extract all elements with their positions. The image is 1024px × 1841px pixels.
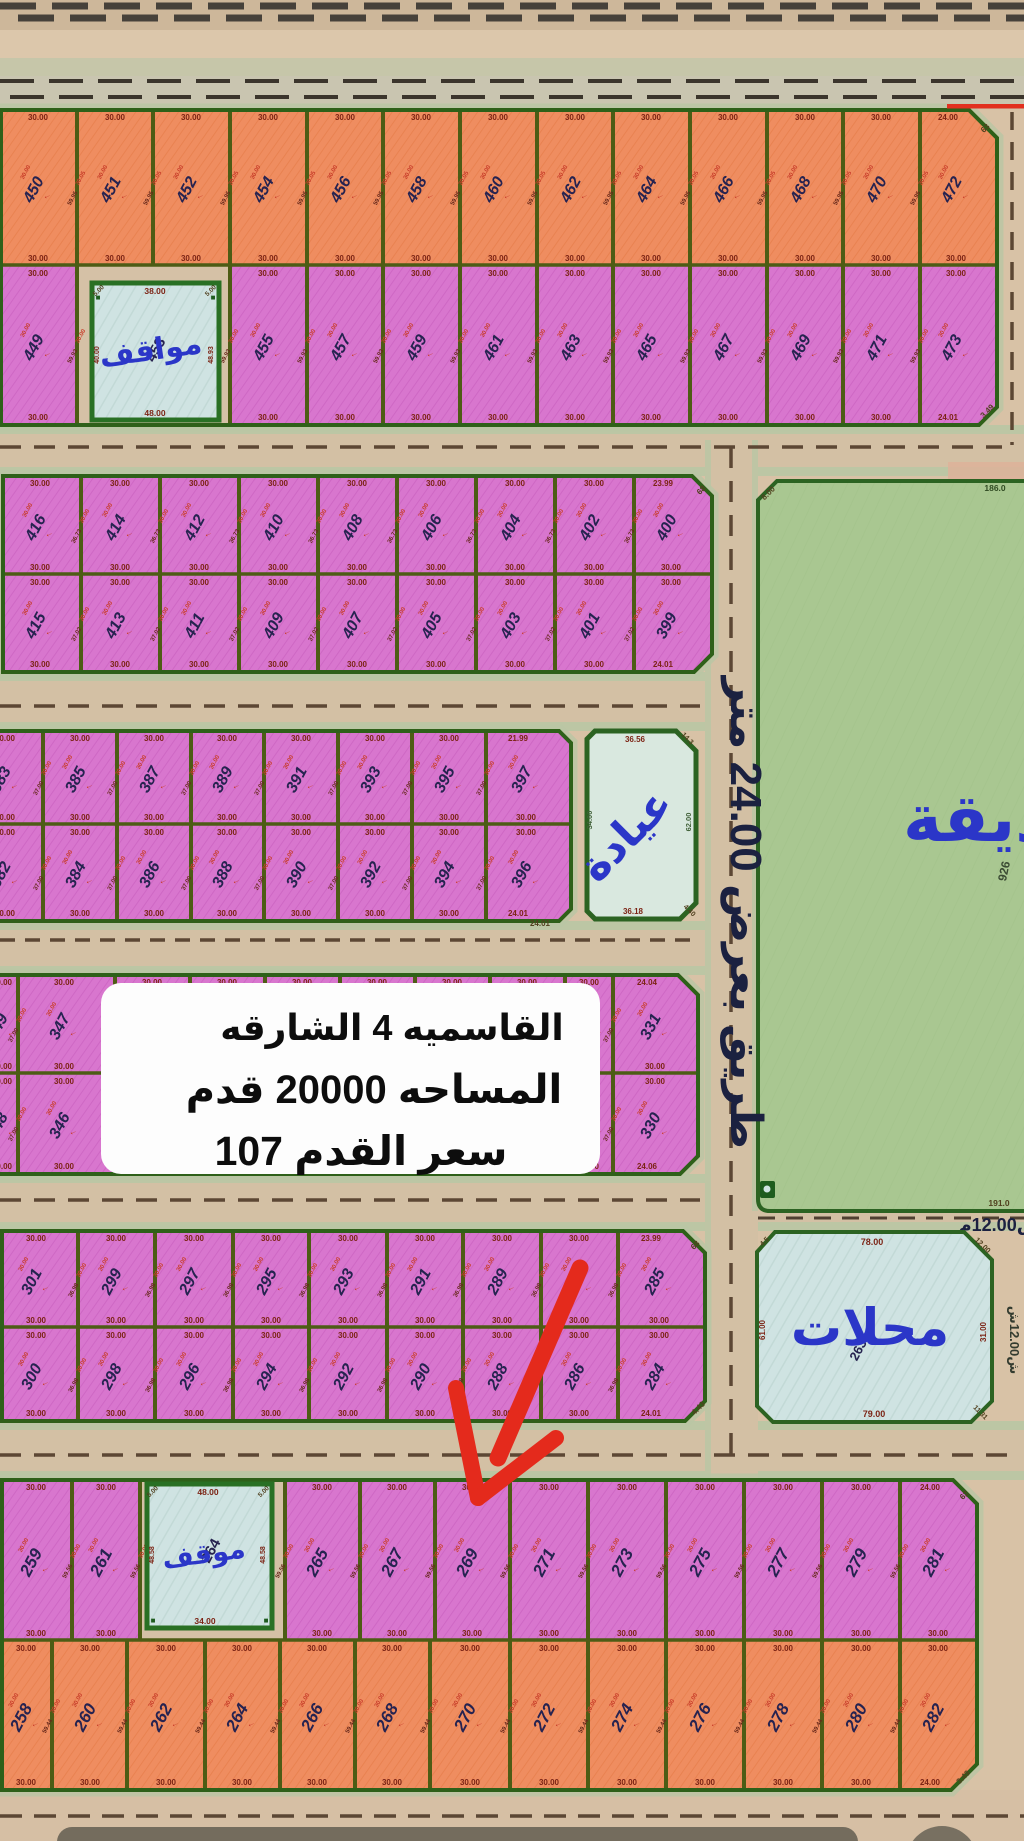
svg-text:30.00: 30.00 xyxy=(795,254,816,263)
svg-text:30.00: 30.00 xyxy=(347,563,368,572)
svg-text:30.00: 30.00 xyxy=(110,660,131,669)
svg-text:30.00: 30.00 xyxy=(96,1629,117,1638)
svg-text:30.00: 30.00 xyxy=(773,1644,794,1653)
svg-text:31.00: 31.00 xyxy=(979,1321,988,1342)
svg-text:30.00: 30.00 xyxy=(584,578,605,587)
svg-text:30.00: 30.00 xyxy=(184,1234,205,1243)
svg-text:30.00: 30.00 xyxy=(307,1778,328,1787)
svg-text:30.00: 30.00 xyxy=(105,254,126,263)
svg-text:30.00: 30.00 xyxy=(641,113,662,122)
svg-text:30.00: 30.00 xyxy=(773,1629,794,1638)
svg-text:30.00: 30.00 xyxy=(718,254,739,263)
svg-text:30.00: 30.00 xyxy=(649,1331,670,1340)
svg-text:30.00: 30.00 xyxy=(335,413,356,422)
svg-text:30.00: 30.00 xyxy=(539,1778,560,1787)
svg-text:30.00: 30.00 xyxy=(871,413,892,422)
svg-text:30.00: 30.00 xyxy=(505,578,526,587)
svg-text:24.00: 24.00 xyxy=(938,113,959,122)
svg-text:30.00: 30.00 xyxy=(16,1644,37,1653)
svg-text:■: ■ xyxy=(264,1616,269,1625)
svg-text:30.00: 30.00 xyxy=(28,269,49,278)
svg-text:36.56: 36.56 xyxy=(625,735,646,744)
svg-text:30.00: 30.00 xyxy=(0,828,16,837)
svg-text:30.00: 30.00 xyxy=(617,1483,638,1492)
svg-text:30.00: 30.00 xyxy=(16,1778,37,1787)
svg-text:30.00: 30.00 xyxy=(338,1234,359,1243)
svg-text:30.00: 30.00 xyxy=(232,1778,253,1787)
svg-text:30.00: 30.00 xyxy=(217,828,238,837)
svg-text:سعر القدم 107: سعر القدم 107 xyxy=(215,1128,508,1176)
svg-text:30.00: 30.00 xyxy=(695,1644,716,1653)
svg-text:30.00: 30.00 xyxy=(426,578,447,587)
svg-text:30.00: 30.00 xyxy=(338,1331,359,1340)
svg-text:30.00: 30.00 xyxy=(505,479,526,488)
svg-text:48.00: 48.00 xyxy=(197,1487,219,1497)
svg-text:38.00: 38.00 xyxy=(144,286,166,296)
svg-text:30.00: 30.00 xyxy=(189,563,210,572)
svg-text:ش12.00ش: ش12.00ش xyxy=(1007,1306,1022,1374)
svg-text:■: ■ xyxy=(151,1616,156,1625)
svg-text:48.00: 48.00 xyxy=(144,408,166,418)
svg-text:30.00: 30.00 xyxy=(795,269,816,278)
svg-text:30.00: 30.00 xyxy=(641,413,662,422)
svg-text:30.00: 30.00 xyxy=(584,660,605,669)
svg-text:30.00: 30.00 xyxy=(70,828,91,837)
svg-text:30.00: 30.00 xyxy=(365,828,386,837)
svg-text:30.00: 30.00 xyxy=(773,1483,794,1492)
svg-text:24.01: 24.01 xyxy=(653,660,674,669)
svg-text:30.00: 30.00 xyxy=(488,413,509,422)
svg-text:30.00: 30.00 xyxy=(312,1629,333,1638)
svg-text:30.00: 30.00 xyxy=(26,1629,47,1638)
svg-text:30.00: 30.00 xyxy=(569,1409,590,1418)
svg-text:30.00: 30.00 xyxy=(871,113,892,122)
svg-text:30.00: 30.00 xyxy=(70,813,91,822)
svg-text:30.00: 30.00 xyxy=(26,1331,47,1340)
svg-text:30.00: 30.00 xyxy=(488,113,509,122)
svg-text:30.00: 30.00 xyxy=(617,1629,638,1638)
svg-text:78.00: 78.00 xyxy=(861,1237,884,1247)
svg-text:محلات: محلات xyxy=(791,1299,949,1356)
svg-text:30.00: 30.00 xyxy=(258,113,279,122)
svg-text:30.00: 30.00 xyxy=(426,479,447,488)
svg-text:30.00: 30.00 xyxy=(268,578,289,587)
svg-text:30.00: 30.00 xyxy=(565,413,586,422)
svg-text:30.00: 30.00 xyxy=(488,254,509,263)
svg-text:30.00: 30.00 xyxy=(156,1778,177,1787)
svg-text:30.00: 30.00 xyxy=(0,813,16,822)
svg-text:30.00: 30.00 xyxy=(70,909,91,918)
svg-text:30.00: 30.00 xyxy=(110,578,131,587)
svg-text:30.00: 30.00 xyxy=(291,734,312,743)
svg-text:30.00: 30.00 xyxy=(347,660,368,669)
svg-text:30.00: 30.00 xyxy=(54,978,75,987)
svg-text:30.00: 30.00 xyxy=(261,1409,282,1418)
svg-text:79.00: 79.00 xyxy=(863,1409,886,1419)
svg-text:30.00: 30.00 xyxy=(946,269,967,278)
svg-text:القاسميه 4 الشارقه: القاسميه 4 الشارقه xyxy=(220,1007,564,1049)
svg-text:30.00: 30.00 xyxy=(565,269,586,278)
svg-text:30.00: 30.00 xyxy=(795,413,816,422)
svg-text:30.00: 30.00 xyxy=(415,1316,436,1325)
svg-text:30.00: 30.00 xyxy=(871,254,892,263)
svg-text:■: ■ xyxy=(211,293,216,302)
svg-text:191.0: 191.0 xyxy=(988,1198,1010,1208)
svg-text:30.00: 30.00 xyxy=(26,1316,47,1325)
svg-text:30.00: 30.00 xyxy=(105,113,126,122)
svg-text:30.00: 30.00 xyxy=(645,1062,666,1071)
svg-text:30.00: 30.00 xyxy=(516,813,537,822)
svg-text:30.00: 30.00 xyxy=(335,254,356,263)
svg-text:30.00: 30.00 xyxy=(426,563,447,572)
svg-text:30.00: 30.00 xyxy=(718,269,739,278)
svg-text:30.00: 30.00 xyxy=(411,254,432,263)
svg-text:30.00: 30.00 xyxy=(773,1778,794,1787)
svg-text:62.00: 62.00 xyxy=(684,813,693,832)
svg-text:21.99: 21.99 xyxy=(508,734,529,743)
svg-text:30.00: 30.00 xyxy=(189,479,210,488)
svg-text:30.00: 30.00 xyxy=(718,113,739,122)
svg-text:30.00: 30.00 xyxy=(338,1409,359,1418)
svg-text:30.00: 30.00 xyxy=(70,734,91,743)
svg-text:24.04: 24.04 xyxy=(637,978,658,987)
svg-text:30.00: 30.00 xyxy=(516,828,537,837)
svg-text:30.00: 30.00 xyxy=(0,1162,13,1171)
svg-text:34.00: 34.00 xyxy=(194,1616,216,1626)
svg-text:23.99: 23.99 xyxy=(653,479,674,488)
svg-text:30.00: 30.00 xyxy=(184,1316,205,1325)
svg-text:30.00: 30.00 xyxy=(156,1644,177,1653)
svg-text:24.01: 24.01 xyxy=(641,1409,662,1418)
svg-text:30.00: 30.00 xyxy=(460,1778,481,1787)
svg-text:30.00: 30.00 xyxy=(54,1062,75,1071)
svg-text:30.00: 30.00 xyxy=(0,734,16,743)
svg-text:30.00: 30.00 xyxy=(462,1629,483,1638)
svg-text:30.00: 30.00 xyxy=(54,1077,75,1086)
svg-text:30.00: 30.00 xyxy=(617,1778,638,1787)
svg-text:30.00: 30.00 xyxy=(338,1316,359,1325)
svg-text:30.00: 30.00 xyxy=(110,563,131,572)
svg-text:23.99: 23.99 xyxy=(641,1234,662,1243)
svg-text:30.00: 30.00 xyxy=(569,1316,590,1325)
svg-text:30.00: 30.00 xyxy=(232,1644,253,1653)
svg-text:30.00: 30.00 xyxy=(28,254,49,263)
svg-text:30.00: 30.00 xyxy=(144,828,165,837)
svg-text:30.00: 30.00 xyxy=(184,1331,205,1340)
svg-text:30.00: 30.00 xyxy=(30,660,51,669)
svg-text:30.00: 30.00 xyxy=(26,1234,47,1243)
svg-text:■: ■ xyxy=(96,293,101,302)
svg-text:30.00: 30.00 xyxy=(261,1331,282,1340)
svg-text:30.00: 30.00 xyxy=(28,413,49,422)
svg-text:30.00: 30.00 xyxy=(584,479,605,488)
svg-text:30.00: 30.00 xyxy=(96,1483,117,1492)
svg-text:30.00: 30.00 xyxy=(181,254,202,263)
svg-text:30.00: 30.00 xyxy=(505,660,526,669)
svg-text:30.00: 30.00 xyxy=(291,813,312,822)
svg-text:30.00: 30.00 xyxy=(387,1629,408,1638)
svg-text:24.01: 24.01 xyxy=(938,413,959,422)
svg-text:30.00: 30.00 xyxy=(426,660,447,669)
svg-text:30.00: 30.00 xyxy=(30,563,51,572)
svg-text:30.00: 30.00 xyxy=(569,1331,590,1340)
svg-text:30.00: 30.00 xyxy=(695,1778,716,1787)
svg-text:30.00: 30.00 xyxy=(268,479,289,488)
svg-text:30.00: 30.00 xyxy=(539,1629,560,1638)
svg-text:30.00: 30.00 xyxy=(928,1629,949,1638)
svg-text:30.00: 30.00 xyxy=(492,1316,513,1325)
svg-text:30.00: 30.00 xyxy=(382,1644,403,1653)
svg-text:ش12.00م: ش12.00م xyxy=(958,1215,1024,1235)
svg-text:61.00: 61.00 xyxy=(758,1319,767,1340)
svg-text:المساحه 20000 قدم: المساحه 20000 قدم xyxy=(186,1068,562,1113)
svg-text:30.00: 30.00 xyxy=(851,1629,872,1638)
svg-text:30.00: 30.00 xyxy=(641,269,662,278)
svg-text:24.00: 24.00 xyxy=(920,1778,941,1787)
svg-text:30.00: 30.00 xyxy=(144,909,165,918)
svg-text:30.00: 30.00 xyxy=(795,113,816,122)
svg-text:30.00: 30.00 xyxy=(851,1644,872,1653)
svg-text:30.00: 30.00 xyxy=(291,828,312,837)
svg-text:30.00: 30.00 xyxy=(335,113,356,122)
svg-text:30.00: 30.00 xyxy=(307,1644,328,1653)
svg-text:48.58: 48.58 xyxy=(149,1546,156,1564)
svg-text:24.00: 24.00 xyxy=(920,1483,941,1492)
svg-text:30.00: 30.00 xyxy=(106,1409,127,1418)
svg-text:186.0: 186.0 xyxy=(984,483,1006,493)
svg-text:48.93: 48.93 xyxy=(208,346,215,364)
svg-text:طريق بعرض 24.00 متر: طريق بعرض 24.00 متر xyxy=(720,675,770,1149)
svg-text:30.00: 30.00 xyxy=(649,1316,670,1325)
svg-text:30.00: 30.00 xyxy=(439,909,460,918)
svg-text:30.00: 30.00 xyxy=(365,734,386,743)
svg-text:30.00: 30.00 xyxy=(411,413,432,422)
svg-text:30.00: 30.00 xyxy=(460,1644,481,1653)
svg-text:30.00: 30.00 xyxy=(492,1234,513,1243)
svg-text:30.00: 30.00 xyxy=(189,660,210,669)
svg-text:30.00: 30.00 xyxy=(312,1483,333,1492)
svg-text:30.00: 30.00 xyxy=(439,734,460,743)
svg-text:30.00: 30.00 xyxy=(189,578,210,587)
svg-text:30.00: 30.00 xyxy=(181,113,202,122)
svg-text:30.00: 30.00 xyxy=(565,254,586,263)
svg-text:30.00: 30.00 xyxy=(217,909,238,918)
svg-text:30.00: 30.00 xyxy=(928,1644,949,1653)
svg-text:30.00: 30.00 xyxy=(26,1483,47,1492)
svg-text:30.00: 30.00 xyxy=(0,978,13,987)
svg-text:30.00: 30.00 xyxy=(439,828,460,837)
svg-text:30.00: 30.00 xyxy=(569,1234,590,1243)
svg-text:30.00: 30.00 xyxy=(584,563,605,572)
svg-text:30.00: 30.00 xyxy=(261,1234,282,1243)
svg-text:30.00: 30.00 xyxy=(695,1483,716,1492)
svg-text:30.00: 30.00 xyxy=(718,413,739,422)
svg-text:30.00: 30.00 xyxy=(30,578,51,587)
svg-text:30.00: 30.00 xyxy=(258,413,279,422)
svg-text:30.00: 30.00 xyxy=(439,813,460,822)
svg-text:30.00: 30.00 xyxy=(144,734,165,743)
svg-text:36.18: 36.18 xyxy=(623,907,644,916)
svg-text:30.00: 30.00 xyxy=(641,254,662,263)
svg-text:48.58: 48.58 xyxy=(260,1546,267,1564)
svg-text:24.06: 24.06 xyxy=(637,1162,658,1171)
svg-text:24.01: 24.01 xyxy=(508,909,529,918)
svg-text:30.00: 30.00 xyxy=(0,909,16,918)
svg-text:30.00: 30.00 xyxy=(80,1644,101,1653)
svg-text:30.00: 30.00 xyxy=(80,1778,101,1787)
svg-text:30.00: 30.00 xyxy=(415,1331,436,1340)
svg-text:30.00: 30.00 xyxy=(258,269,279,278)
svg-text:30.00: 30.00 xyxy=(106,1331,127,1340)
svg-text:30.00: 30.00 xyxy=(365,813,386,822)
svg-text:30.00: 30.00 xyxy=(106,1234,127,1243)
svg-text:30.00: 30.00 xyxy=(261,1316,282,1325)
svg-text:30.00: 30.00 xyxy=(26,1409,47,1418)
svg-text:30.00: 30.00 xyxy=(411,113,432,122)
svg-text:30.00: 30.00 xyxy=(415,1234,436,1243)
svg-text:30.00: 30.00 xyxy=(365,909,386,918)
svg-text:30.00: 30.00 xyxy=(387,1483,408,1492)
svg-text:30.00: 30.00 xyxy=(291,909,312,918)
svg-text:30.00: 30.00 xyxy=(695,1629,716,1638)
svg-text:30.00: 30.00 xyxy=(268,563,289,572)
svg-text:30.00: 30.00 xyxy=(492,1331,513,1340)
svg-text:30.00: 30.00 xyxy=(505,563,526,572)
svg-text:30.00: 30.00 xyxy=(539,1483,560,1492)
svg-text:30.00: 30.00 xyxy=(54,1162,75,1171)
svg-text:30.00: 30.00 xyxy=(144,813,165,822)
svg-text:30.00: 30.00 xyxy=(645,1077,666,1086)
svg-text:30.00: 30.00 xyxy=(217,813,238,822)
svg-text:30.00: 30.00 xyxy=(661,578,682,587)
svg-text:30.00: 30.00 xyxy=(28,113,49,122)
svg-text:30.00: 30.00 xyxy=(30,479,51,488)
svg-text:30.00: 30.00 xyxy=(382,1778,403,1787)
svg-text:30.00: 30.00 xyxy=(184,1409,205,1418)
svg-text:30.00: 30.00 xyxy=(661,563,682,572)
svg-text:30.00: 30.00 xyxy=(335,269,356,278)
svg-text:30.00: 30.00 xyxy=(0,1062,13,1071)
svg-text:30.00: 30.00 xyxy=(871,269,892,278)
svg-text:30.00: 30.00 xyxy=(347,479,368,488)
svg-text:30.00: 30.00 xyxy=(565,113,586,122)
svg-text:30.00: 30.00 xyxy=(258,254,279,263)
svg-text:30.00: 30.00 xyxy=(415,1409,436,1418)
svg-text:30.00: 30.00 xyxy=(347,578,368,587)
svg-text:30.00: 30.00 xyxy=(0,1077,13,1086)
svg-text:34.00: 34.00 xyxy=(585,811,594,830)
svg-text:30.00: 30.00 xyxy=(217,734,238,743)
svg-text:30.00: 30.00 xyxy=(617,1644,638,1653)
svg-text:30.00: 30.00 xyxy=(110,479,131,488)
svg-text:30.00: 30.00 xyxy=(488,269,509,278)
svg-text:حديقة: حديقة xyxy=(903,781,1024,855)
svg-text:30.00: 30.00 xyxy=(851,1483,872,1492)
svg-text:30.00: 30.00 xyxy=(946,254,967,263)
svg-text:30.00: 30.00 xyxy=(268,660,289,669)
svg-text:30.00: 30.00 xyxy=(411,269,432,278)
svg-text:30.00: 30.00 xyxy=(539,1644,560,1653)
svg-text:24.01: 24.01 xyxy=(530,919,551,928)
svg-text:30.00: 30.00 xyxy=(106,1316,127,1325)
svg-text:30.00: 30.00 xyxy=(851,1778,872,1787)
